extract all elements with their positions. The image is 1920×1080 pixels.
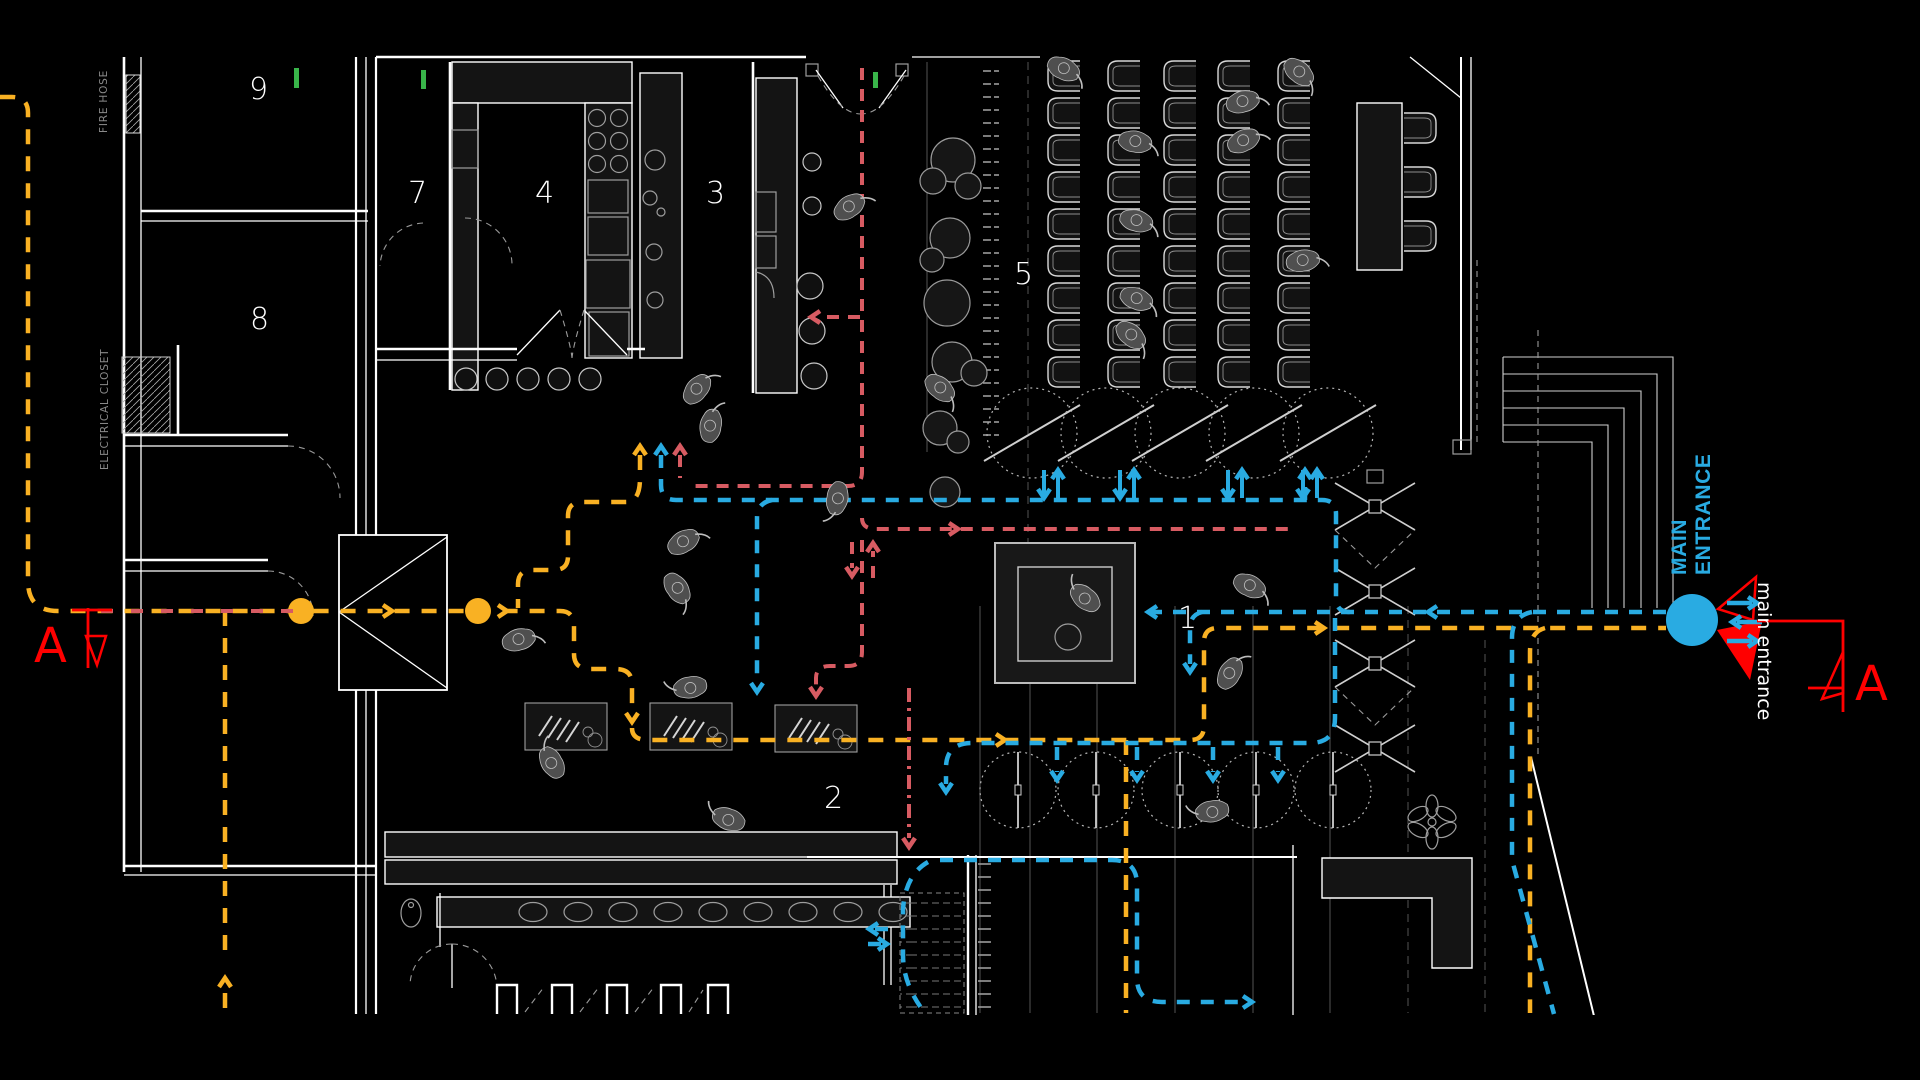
- stairs: [900, 855, 994, 1015]
- main-entrance-label: MAIN ENTRANCE: [1668, 454, 1715, 575]
- room-label-8: 8: [250, 302, 268, 337]
- serving-tables: [525, 703, 857, 752]
- restroom: [401, 893, 910, 1014]
- flower-plant: [1405, 795, 1458, 849]
- room-label-9: 9: [249, 72, 267, 107]
- section-cut-icon: [1822, 652, 1843, 699]
- room-label-1: 1: [1178, 601, 1196, 636]
- room-label-5: 5: [1014, 257, 1032, 292]
- auditorium-chairs: [1048, 61, 1310, 387]
- central-island: [995, 543, 1135, 683]
- booth-tables-upper: [984, 388, 1376, 478]
- electrical-closet-label: ELECTRICAL CLOSET: [99, 349, 111, 470]
- site-plan-canvas: A A 9 8 7 4 3 5 1 2 FIRE HOSE ELECTRICAL…: [0, 0, 1920, 1080]
- letterbox-bottom: [0, 1015, 1920, 1080]
- folding-partitions: [1335, 470, 1415, 772]
- diagonal-wall: [1531, 757, 1594, 1016]
- svg-text:ENTRANCE: ENTRANCE: [1692, 454, 1715, 575]
- toilet: [401, 899, 421, 927]
- booth-flow-arrows: [1038, 470, 1323, 498]
- main-entrance-secondary-label: main entrance: [1753, 582, 1775, 720]
- speaker-table: [1357, 103, 1436, 270]
- toilet-stalls: [497, 985, 728, 1014]
- route-red-bar-arrow: [674, 446, 686, 478]
- walkway-strip: [983, 62, 999, 440]
- section-marker-left: A: [34, 608, 112, 674]
- room-label-4: 4: [535, 176, 553, 211]
- room-label-3: 3: [706, 176, 724, 211]
- main-entrance-node: [1666, 594, 1718, 646]
- fire-hose-cabinet: [126, 75, 140, 133]
- section-label: A: [1855, 656, 1888, 712]
- lounge-sofa: [1322, 795, 1472, 968]
- stepped-glazing: [1410, 57, 1673, 608]
- route-node-2: [465, 598, 491, 624]
- walls-left-block: [122, 57, 376, 875]
- svg-text:MAIN: MAIN: [1668, 519, 1691, 575]
- room-label-2: 2: [824, 781, 842, 816]
- entrance-marker: [1666, 577, 1762, 680]
- fire-hose-label: FIRE HOSE: [98, 70, 110, 133]
- trees: [920, 138, 987, 507]
- top-entry-door: [806, 64, 908, 114]
- section-label: A: [34, 618, 67, 674]
- room-label-7: 7: [408, 176, 426, 211]
- section-marker-right: A: [1757, 621, 1888, 712]
- electrical-closet-hatch: [122, 357, 170, 433]
